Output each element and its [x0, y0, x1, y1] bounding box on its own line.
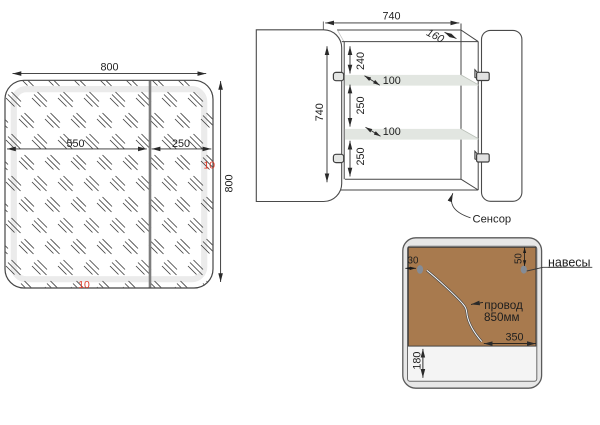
svg-text:800: 800	[100, 61, 118, 73]
svg-text:180: 180	[412, 352, 424, 370]
svg-text:550: 550	[66, 138, 84, 150]
svg-text:10: 10	[78, 280, 90, 291]
svg-text:740: 740	[314, 103, 326, 121]
svg-text:850мм: 850мм	[484, 311, 520, 324]
svg-text:350: 350	[505, 331, 523, 343]
svg-text:740: 740	[382, 11, 400, 23]
svg-text:100: 100	[383, 75, 401, 87]
svg-text:800: 800	[224, 174, 236, 192]
svg-text:240: 240	[355, 52, 367, 70]
svg-text:250: 250	[172, 138, 190, 150]
svg-text:250: 250	[355, 96, 367, 114]
svg-text:10: 10	[204, 160, 216, 171]
svg-text:30: 30	[408, 256, 419, 267]
svg-text:100: 100	[383, 126, 401, 138]
svg-text:250: 250	[355, 147, 367, 165]
svg-text:провод: провод	[484, 299, 523, 312]
svg-text:навесы: навесы	[548, 255, 591, 269]
svg-text:50: 50	[513, 253, 524, 264]
svg-text:Сенсор: Сенсор	[473, 214, 512, 226]
